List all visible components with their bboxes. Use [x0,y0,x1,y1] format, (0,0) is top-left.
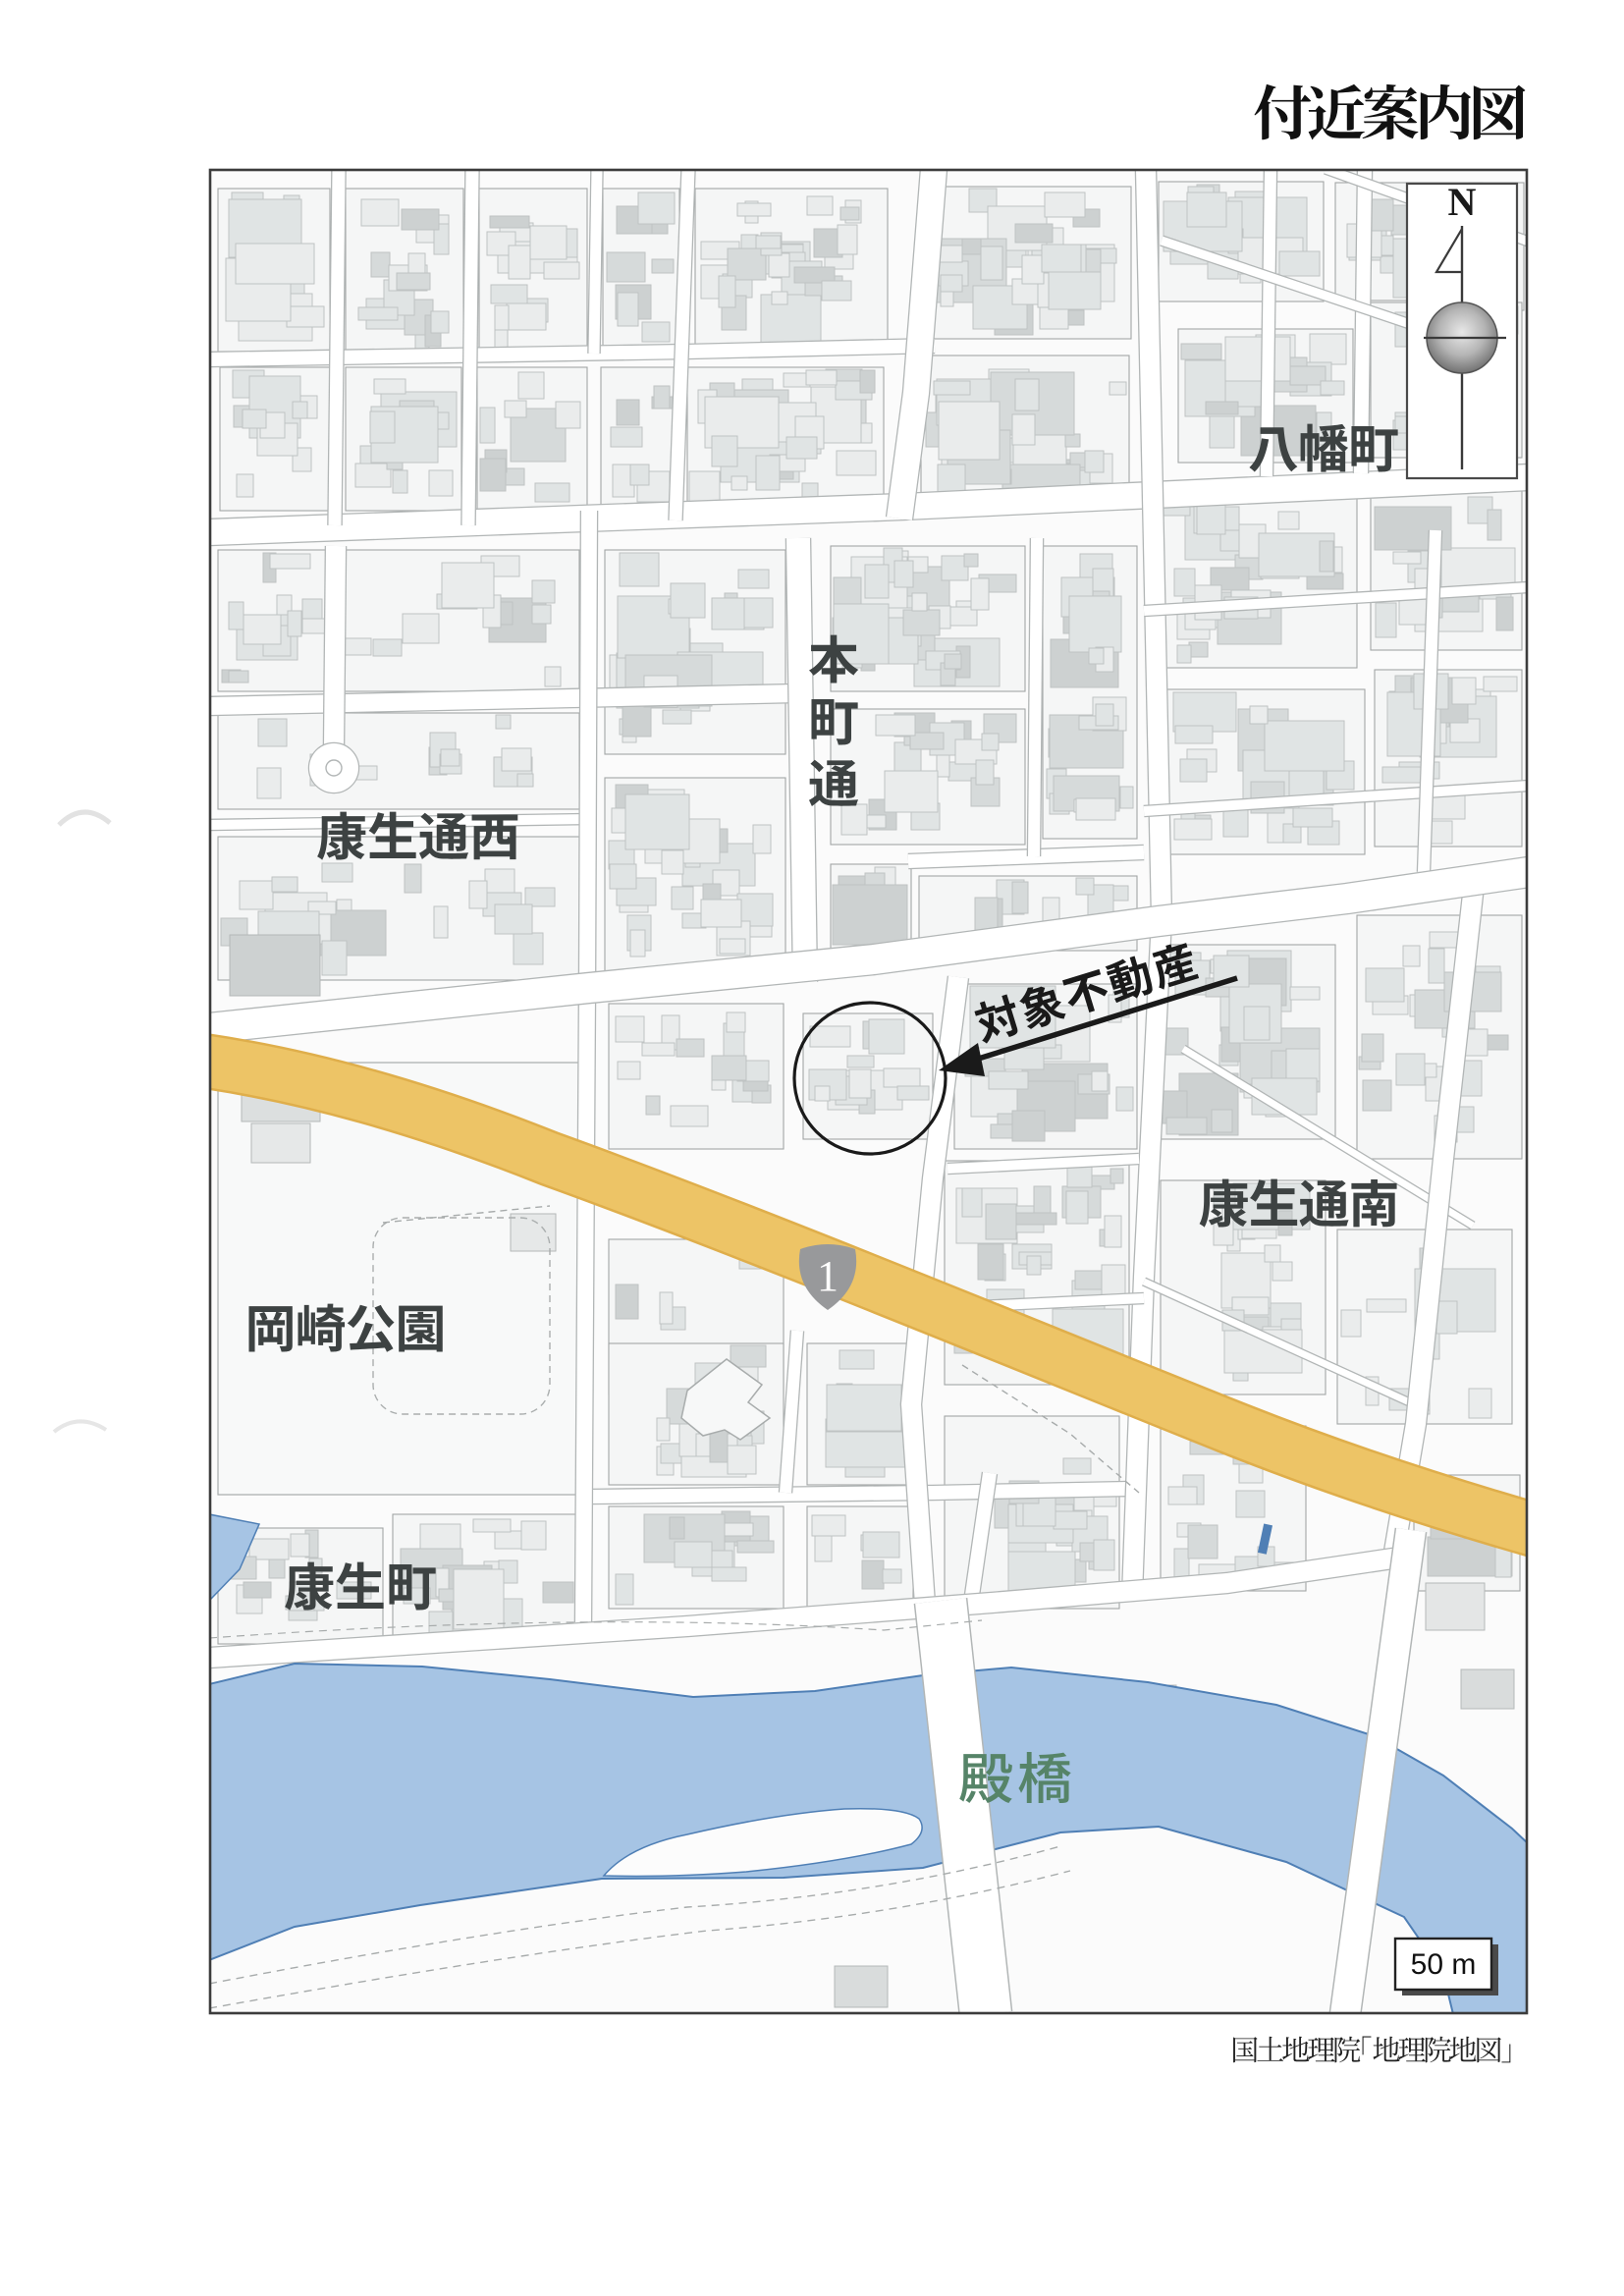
svg-text:50 m: 50 m [1411,1948,1477,1981]
svg-text:N: N [1448,180,1477,224]
svg-text:1: 1 [817,1252,839,1300]
